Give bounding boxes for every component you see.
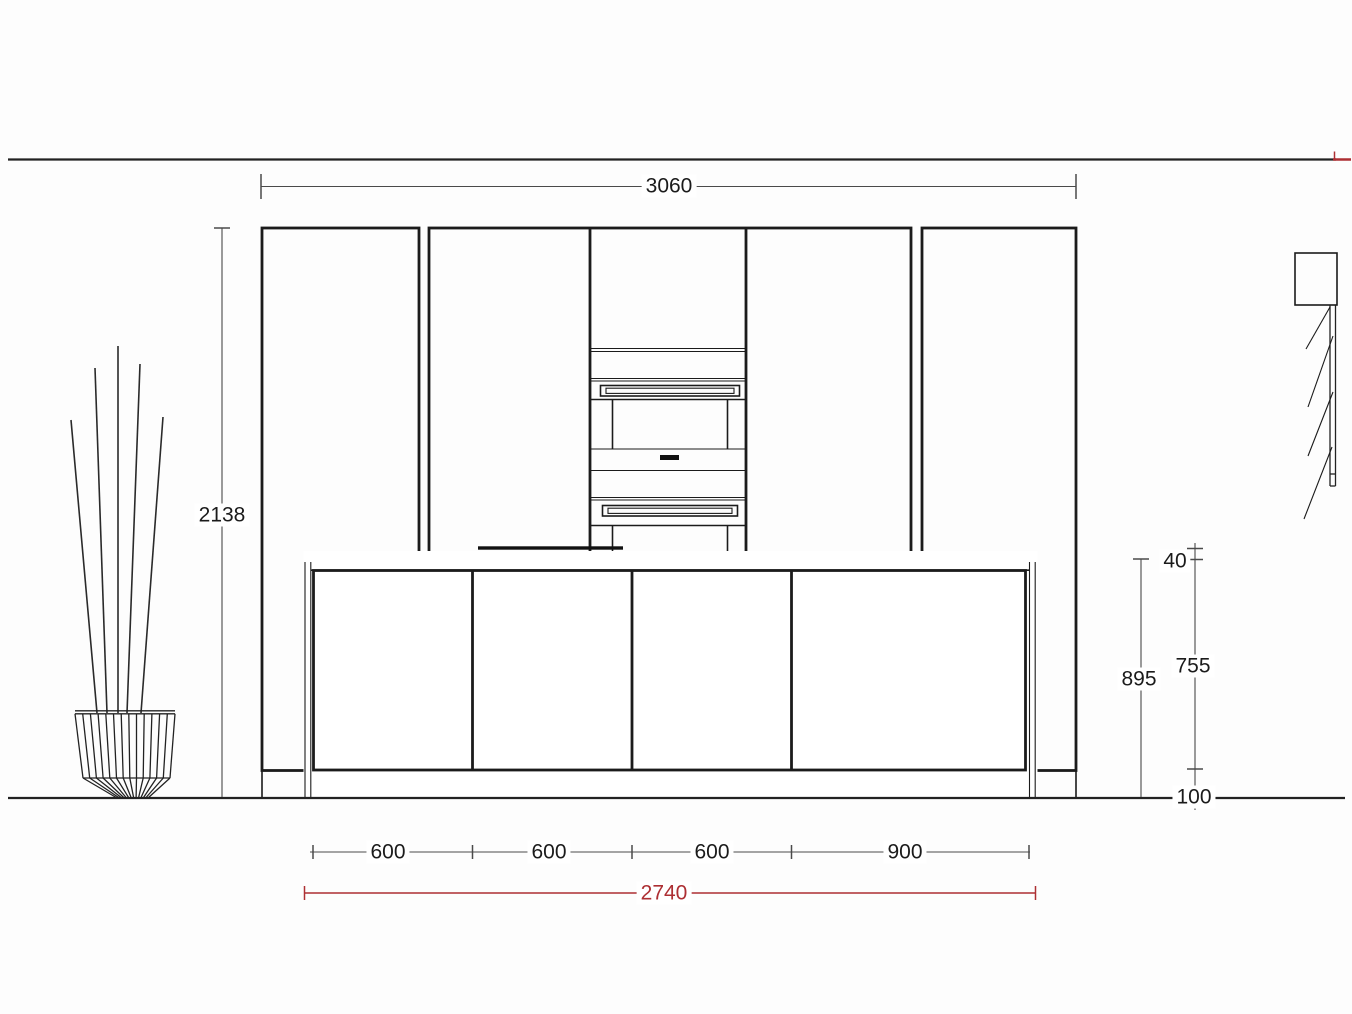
dim-island-height-label: 895 [1117,668,1160,691]
oven-handle-upper [601,386,740,397]
plant-vase [75,711,175,798]
dim-segment-4-label: 900 [883,841,926,864]
appliance-logo-mark [660,455,679,460]
dim-segment-3-label: 600 [690,841,733,864]
ceiling-line [8,152,1351,161]
oven-door-window [591,400,745,449]
dim-run-width-label: 3060 [642,175,697,198]
island-worktop [304,552,1038,563]
oven-handle-lower [603,506,738,517]
dim-front-height-label: 755 [1171,655,1214,678]
plant [71,346,175,798]
dim-base-total-label: 2740 [637,882,692,905]
oven-tower [591,349,745,552]
cooktop [478,546,623,549]
drawing-canvas: 3060 2138 40 895 755 100 600 600 600 900… [0,0,1352,1014]
dim-worktop-label: 40 [1159,550,1190,573]
side-profile [1295,253,1337,519]
plant-stems [71,346,163,713]
dim-plinth-label: 100 [1172,786,1215,809]
dim-segment-2-label: 600 [527,841,570,864]
dim-segment-1-label: 600 [366,841,409,864]
island [304,551,1038,798]
dim-total-height-label: 2138 [195,504,250,527]
side-profile-hatch [1304,307,1333,519]
